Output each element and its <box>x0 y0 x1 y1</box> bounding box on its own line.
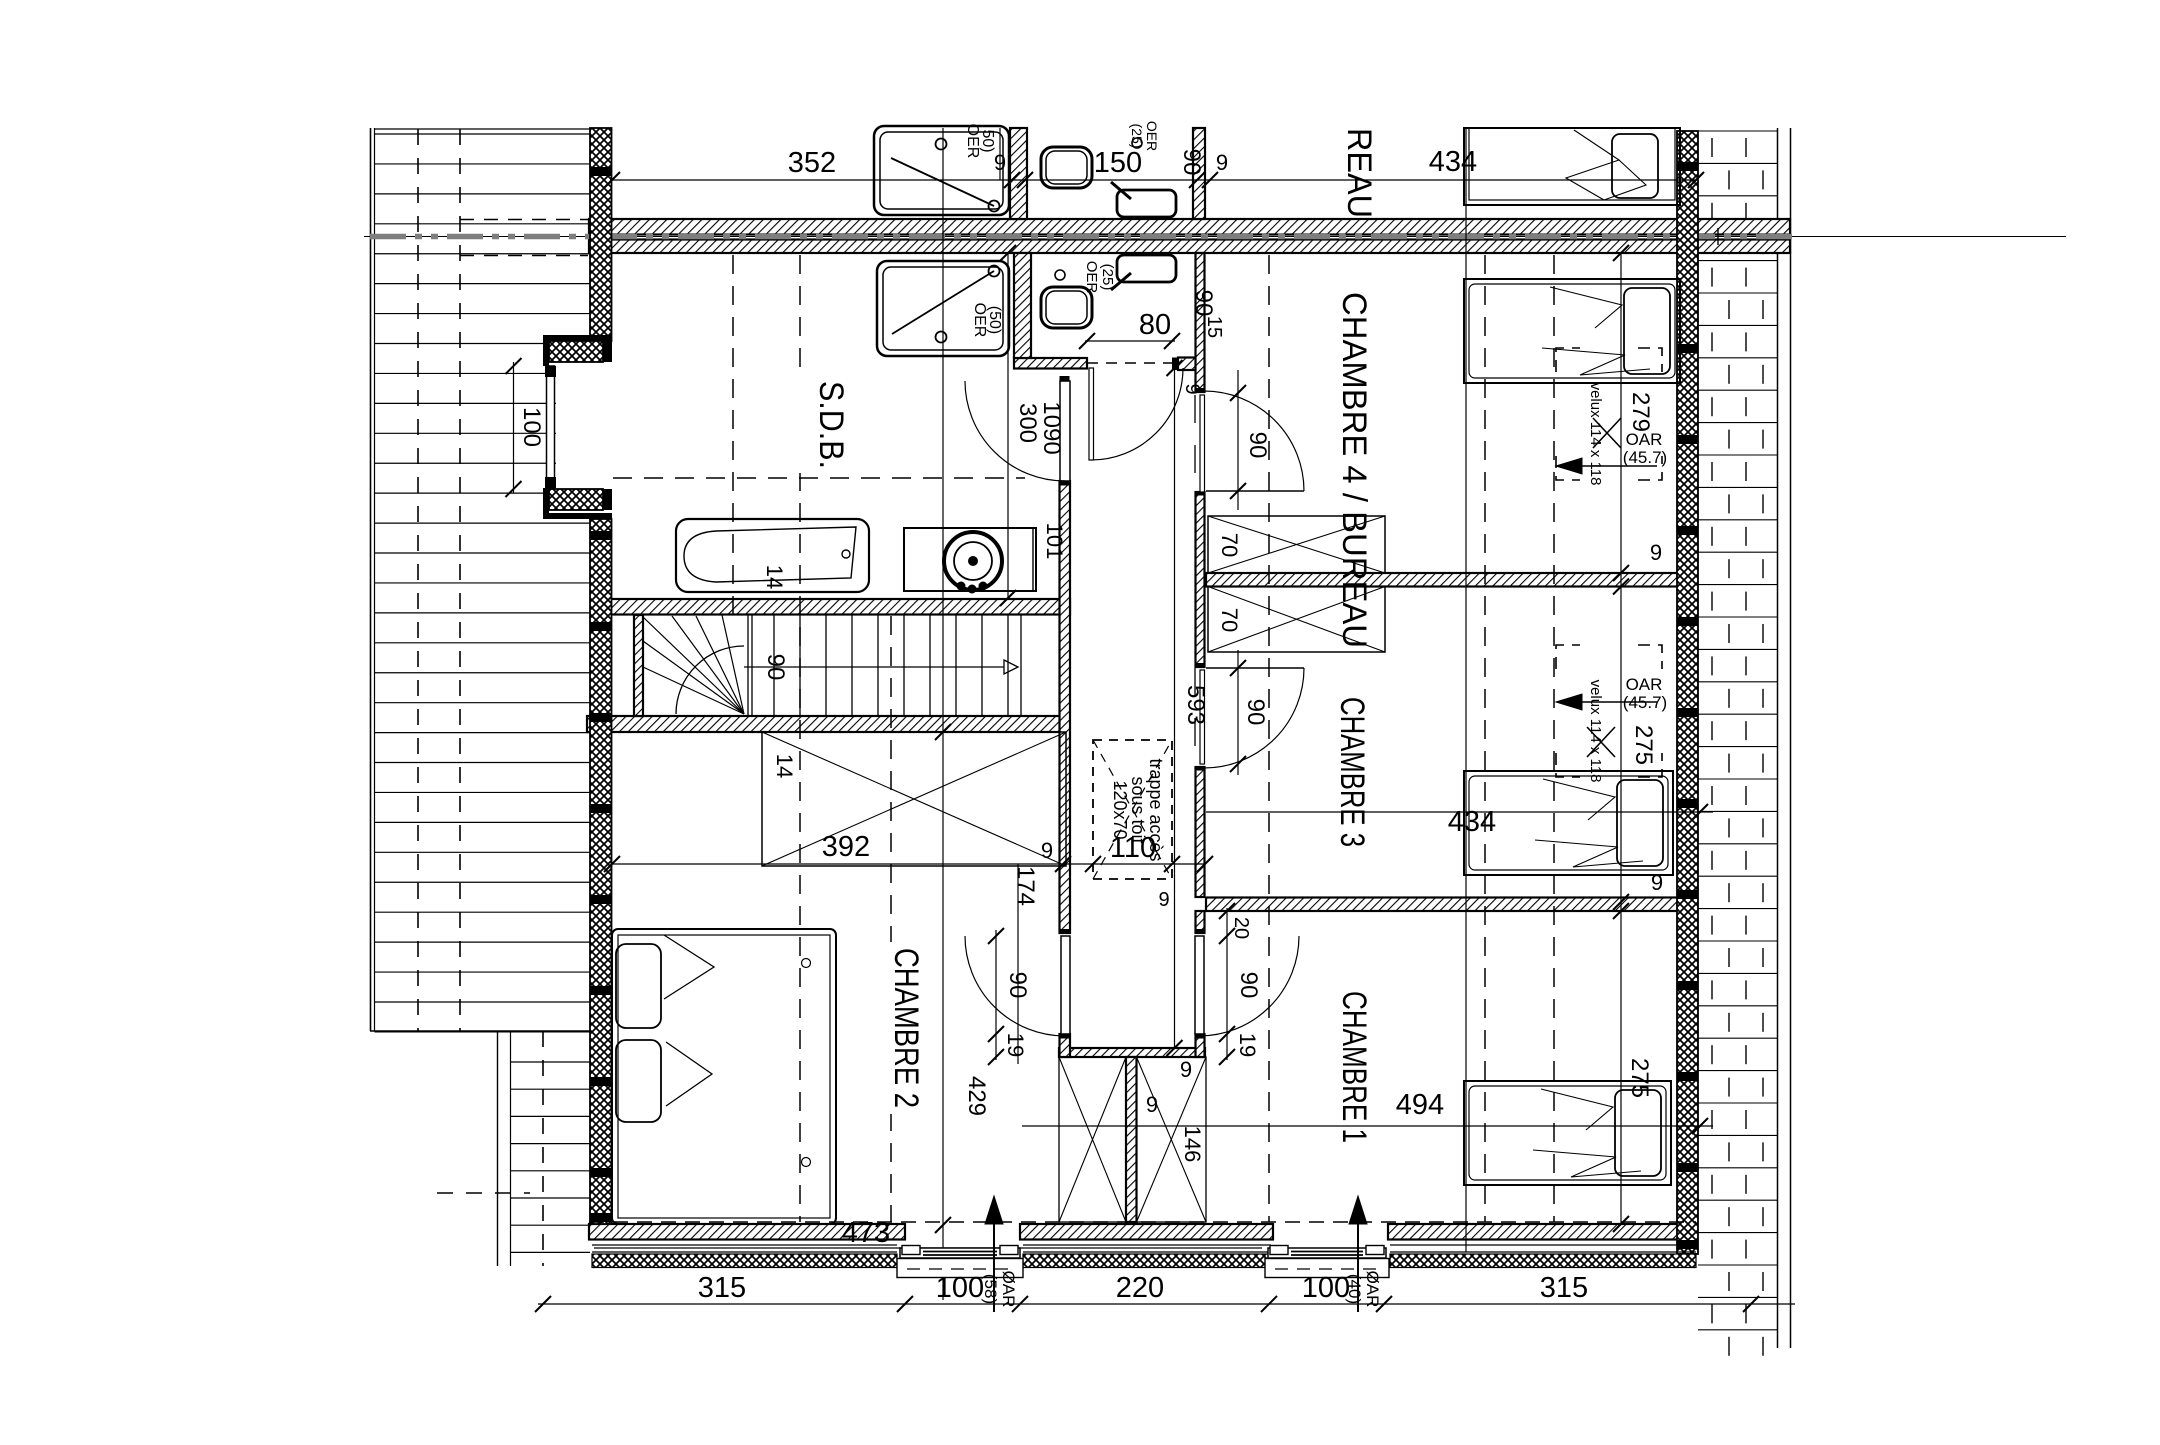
svg-text:15: 15 <box>1203 316 1225 338</box>
svg-text:CHAMBRE 3: CHAMBRE 3 <box>1333 697 1371 847</box>
svg-text:9: 9 <box>994 150 1006 175</box>
svg-text:90: 90 <box>1235 972 1262 999</box>
svg-text:220: 220 <box>1116 1272 1164 1304</box>
svg-text:315: 315 <box>698 1272 746 1304</box>
svg-text:90: 90 <box>1004 972 1031 999</box>
svg-text:392: 392 <box>822 831 870 863</box>
svg-text:9: 9 <box>1146 1092 1158 1117</box>
svg-text:70: 70 <box>1217 608 1242 632</box>
svg-text:146: 146 <box>1180 1126 1205 1163</box>
svg-text:80: 80 <box>1139 309 1171 341</box>
svg-text:9: 9 <box>1216 150 1228 175</box>
svg-text:90: 90 <box>1242 699 1269 726</box>
svg-text:OER: OER <box>964 124 981 159</box>
svg-text:(45.7): (45.7) <box>1623 448 1667 467</box>
svg-text:OAR: OAR <box>1626 675 1663 694</box>
svg-text:19: 19 <box>1003 1033 1028 1057</box>
svg-text:279: 279 <box>1627 392 1654 432</box>
svg-text:593: 593 <box>1182 685 1209 725</box>
svg-text:150: 150 <box>1094 147 1142 179</box>
svg-text:434: 434 <box>1429 146 1477 178</box>
svg-text:1090: 1090 <box>1038 401 1065 454</box>
svg-text:S.D.B.: S.D.B. <box>812 381 850 469</box>
svg-text:90: 90 <box>1178 149 1205 176</box>
svg-text:9: 9 <box>1181 383 1203 394</box>
svg-text:(25): (25) <box>1099 264 1116 291</box>
svg-text:352: 352 <box>788 147 836 179</box>
svg-text:174: 174 <box>1012 866 1039 906</box>
svg-text:90: 90 <box>762 654 789 681</box>
svg-text:275: 275 <box>1630 725 1657 765</box>
svg-text:OER: OER <box>1144 121 1160 151</box>
svg-text:ØAR: ØAR <box>999 1271 1018 1308</box>
svg-text:100: 100 <box>518 407 545 447</box>
svg-text:300: 300 <box>1014 403 1041 443</box>
svg-text:OER: OER <box>971 303 988 338</box>
svg-text:90: 90 <box>1190 290 1217 317</box>
svg-text:275: 275 <box>1626 1058 1653 1098</box>
svg-text:OAR: OAR <box>1626 430 1663 449</box>
svg-text:19: 19 <box>1235 1033 1260 1057</box>
svg-text:velux 114 x 118: velux 114 x 118 <box>1587 383 1604 486</box>
svg-text:REAU: REAU <box>1340 128 1378 218</box>
svg-text:429: 429 <box>963 1076 990 1116</box>
svg-text:120x70: 120x70 <box>1110 780 1130 839</box>
svg-text:CHAMBRE 1: CHAMBRE 1 <box>1335 991 1373 1143</box>
svg-text:9: 9 <box>1650 540 1662 565</box>
svg-text:(50): (50) <box>986 306 1003 334</box>
svg-text:9: 9 <box>1180 1057 1192 1082</box>
svg-text:ØAR: ØAR <box>1363 1271 1382 1308</box>
svg-text:20: 20 <box>1230 917 1252 939</box>
svg-text:(45.7): (45.7) <box>1623 693 1667 712</box>
svg-text:494: 494 <box>1396 1089 1444 1121</box>
svg-text:9: 9 <box>1041 838 1053 863</box>
svg-text:9: 9 <box>1158 889 1169 911</box>
svg-text:315: 315 <box>1540 1272 1588 1304</box>
svg-text:110: 110 <box>1110 832 1156 864</box>
svg-text:100: 100 <box>1302 1272 1350 1304</box>
svg-text:velux 114 x 118: velux 114 x 118 <box>1587 680 1604 783</box>
svg-text:14: 14 <box>762 565 787 589</box>
svg-text:9: 9 <box>1651 870 1663 895</box>
svg-text:14: 14 <box>772 754 797 778</box>
svg-text:(25): (25) <box>1129 124 1145 149</box>
svg-text:473: 473 <box>842 1217 890 1249</box>
svg-text:434: 434 <box>1448 806 1496 838</box>
svg-text:90: 90 <box>1244 432 1271 459</box>
svg-text:CHAMBRE 2: CHAMBRE 2 <box>887 948 925 1108</box>
svg-text:OER: OER <box>1083 261 1100 294</box>
svg-text:70: 70 <box>1217 533 1242 557</box>
svg-text:101: 101 <box>1042 523 1067 560</box>
svg-text:CHAMBRE 4 / BUREAU: CHAMBRE 4 / BUREAU <box>1335 292 1373 648</box>
svg-text:100: 100 <box>936 1272 984 1304</box>
